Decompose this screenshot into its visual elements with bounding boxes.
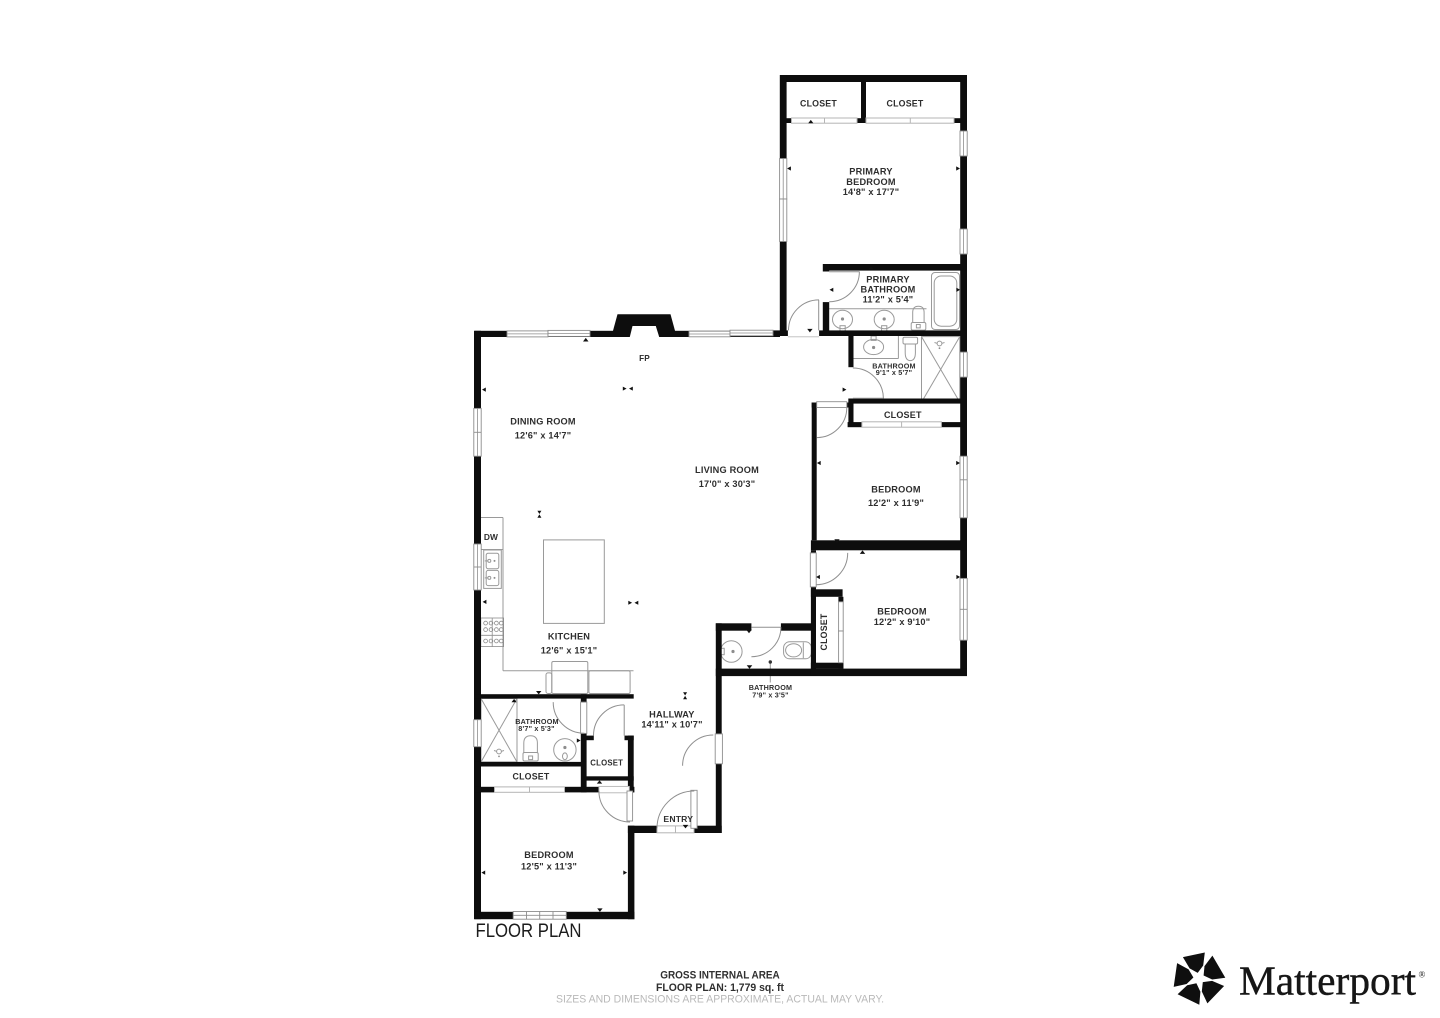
svg-text:BEDROOM: BEDROOM [846,177,896,187]
svg-text:BEDROOM: BEDROOM [871,485,921,495]
svg-text:BATHROOM: BATHROOM [860,284,915,294]
svg-text:9'1" x 5'7": 9'1" x 5'7" [876,368,912,377]
svg-text:HALLWAY: HALLWAY [649,709,694,719]
svg-text:CLOSET: CLOSET [513,772,550,782]
svg-text:14'11" x 10'7": 14'11" x 10'7" [641,719,702,729]
svg-text:11'2" x 5'4": 11'2" x 5'4" [863,294,914,304]
svg-text:BEDROOM: BEDROOM [877,607,927,617]
svg-text:FP: FP [639,354,650,363]
svg-text:DINING ROOM: DINING ROOM [510,417,576,427]
svg-text:BEDROOM: BEDROOM [524,850,574,860]
svg-text:12'6" x 14'7": 12'6" x 14'7" [515,431,572,441]
svg-text:7'9" x 3'5": 7'9" x 3'5" [752,690,788,699]
svg-text:CLOSET: CLOSET [884,410,922,420]
svg-text:CLOSET: CLOSET [590,759,623,768]
svg-text:DW: DW [484,532,498,542]
svg-text:CLOSET: CLOSET [819,613,829,650]
svg-text:SIZES AND DIMENSIONS ARE APPRO: SIZES AND DIMENSIONS ARE APPROXIMATE, AC… [556,993,884,1005]
svg-text:GROSS INTERNAL AREA: GROSS INTERNAL AREA [660,970,780,982]
svg-text:14'8" x 17'7": 14'8" x 17'7" [843,187,900,197]
svg-text:12'6" x 15'1": 12'6" x 15'1" [541,645,598,655]
svg-text:12'5" x 11'3": 12'5" x 11'3" [521,862,577,872]
svg-text:LIVING ROOM: LIVING ROOM [695,465,759,475]
svg-text:Matterport: Matterport [1239,958,1417,1004]
svg-text:KITCHEN: KITCHEN [548,631,590,641]
svg-text:17'0" x 30'3": 17'0" x 30'3" [699,479,756,489]
svg-text:12'2" x 9'10": 12'2" x 9'10" [874,617,931,627]
svg-text:8'7" x 5'3": 8'7" x 5'3" [518,724,554,733]
svg-text:FLOOR PLAN: 1,779 sq. ft: FLOOR PLAN: 1,779 sq. ft [656,982,784,994]
svg-text:PRIMARY: PRIMARY [866,274,909,284]
svg-text:®: ® [1419,970,1426,980]
svg-text:CLOSET: CLOSET [887,99,924,109]
svg-text:CLOSET: CLOSET [800,99,837,109]
svg-text:12'2" x 11'9": 12'2" x 11'9" [868,498,924,508]
svg-text:PRIMARY: PRIMARY [849,166,892,176]
svg-text:FLOOR PLAN: FLOOR PLAN [476,920,582,942]
svg-text:ENTRY: ENTRY [663,814,693,824]
